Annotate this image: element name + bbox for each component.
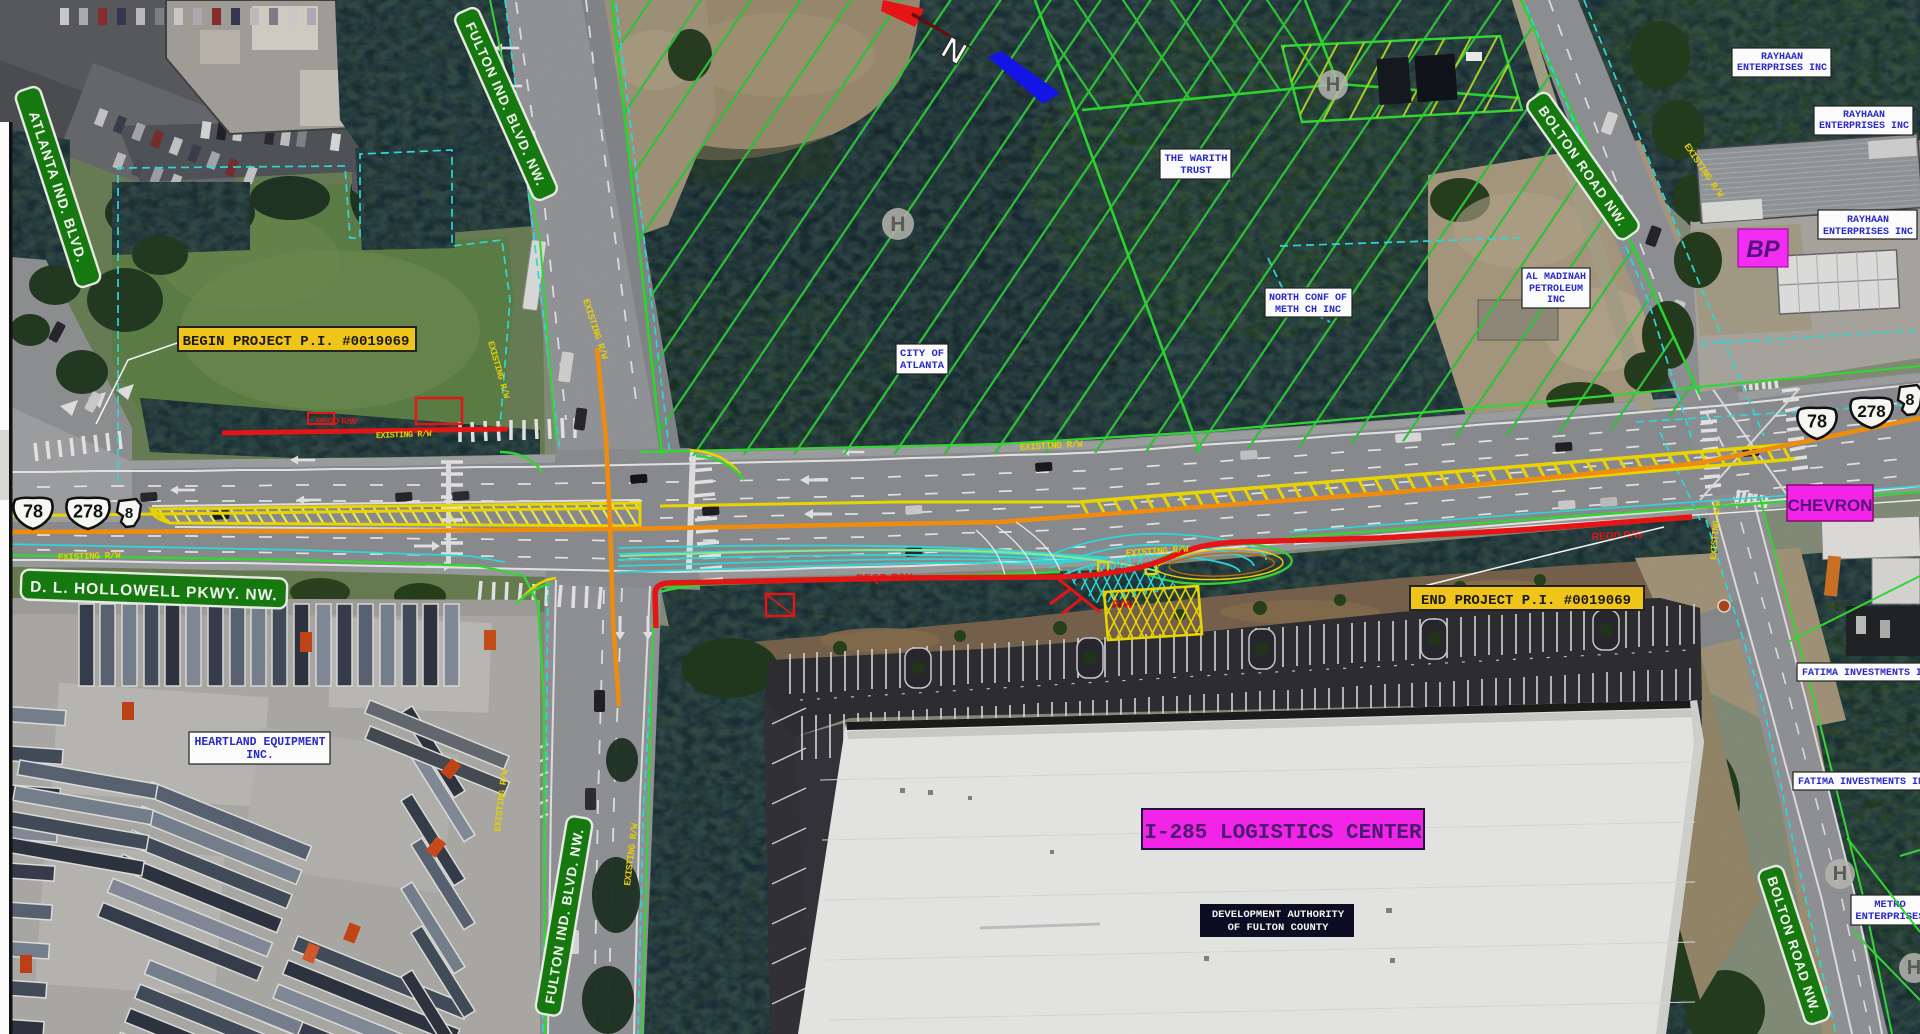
svg-text:INC: INC <box>1547 295 1565 306</box>
svg-text:REQD R/W: REQD R/W <box>856 572 913 585</box>
svg-text:INC.: INC. <box>246 749 274 762</box>
svg-text:FATIMA INVESTMENTS INC: FATIMA INVESTMENTS INC <box>1798 777 1920 788</box>
svg-text:HEARTLAND EQUIPMENT: HEARTLAND EQUIPMENT <box>194 736 325 749</box>
svg-text:RAYHAAN: RAYHAAN <box>1847 215 1889 226</box>
svg-text:78: 78 <box>23 501 43 521</box>
svg-text:FATIMA INVESTMENTS INC: FATIMA INVESTMENTS INC <box>1802 668 1920 679</box>
svg-text:8: 8 <box>125 505 133 522</box>
svg-text:278: 278 <box>1857 402 1885 421</box>
svg-text:THE WARITH: THE WARITH <box>1164 153 1227 165</box>
svg-text:OF FULTON COUNTY: OF FULTON COUNTY <box>1228 922 1330 934</box>
svg-text:METH CH INC: METH CH INC <box>1275 305 1341 316</box>
svg-text:I-285 LOGISTICS CENTER: I-285 LOGISTICS CENTER <box>1144 822 1422 845</box>
svg-text:H: H <box>1326 74 1340 96</box>
svg-text:ENTERPRISES: ENTERPRISES <box>1855 911 1920 923</box>
svg-text:PETROLEUM: PETROLEUM <box>1529 284 1583 295</box>
svg-text:ENTERPRISES INC: ENTERPRISES INC <box>1823 227 1913 238</box>
svg-text:H: H <box>1833 863 1847 885</box>
svg-text:EXISTING R/W: EXISTING R/W <box>376 429 433 441</box>
svg-text:CHEVRON: CHEVRON <box>1787 496 1872 515</box>
svg-text:END PROJECT P.I. #0019069: END PROJECT P.I. #0019069 <box>1421 593 1631 609</box>
svg-text:CITY OF: CITY OF <box>900 348 944 360</box>
svg-text:REQD R/W: REQD R/W <box>316 417 357 426</box>
svg-text:ATLANTA: ATLANTA <box>900 360 945 372</box>
svg-text:278: 278 <box>73 501 103 521</box>
svg-text:EXISTING R/W: EXISTING R/W <box>58 550 122 563</box>
svg-text:BP: BP <box>1746 236 1780 263</box>
svg-text:AL MADINAH: AL MADINAH <box>1526 272 1586 283</box>
svg-text:BEGIN PROJECT P.I. #0019069: BEGIN PROJECT P.I. #0019069 <box>183 334 410 350</box>
svg-text:ENTERPRISES INC: ENTERPRISES INC <box>1819 121 1909 132</box>
svg-text:DEVELOPMENT AUTHORITY: DEVELOPMENT AUTHORITY <box>1212 909 1345 921</box>
svg-text:NORTH CONF OF: NORTH CONF OF <box>1269 293 1347 304</box>
svg-text:H: H <box>890 213 905 236</box>
svg-text:ENTERPRISES INC: ENTERPRISES INC <box>1737 63 1827 74</box>
svg-text:R/W: R/W <box>1112 599 1134 611</box>
svg-text:RAYHAAN: RAYHAAN <box>1761 52 1803 63</box>
svg-text:8: 8 <box>1906 392 1915 409</box>
svg-text:TRUST: TRUST <box>1180 165 1212 177</box>
svg-text:78: 78 <box>1807 411 1827 431</box>
svg-text:RAYHAAN: RAYHAAN <box>1843 110 1885 121</box>
svg-text:H: H <box>1907 957 1920 979</box>
